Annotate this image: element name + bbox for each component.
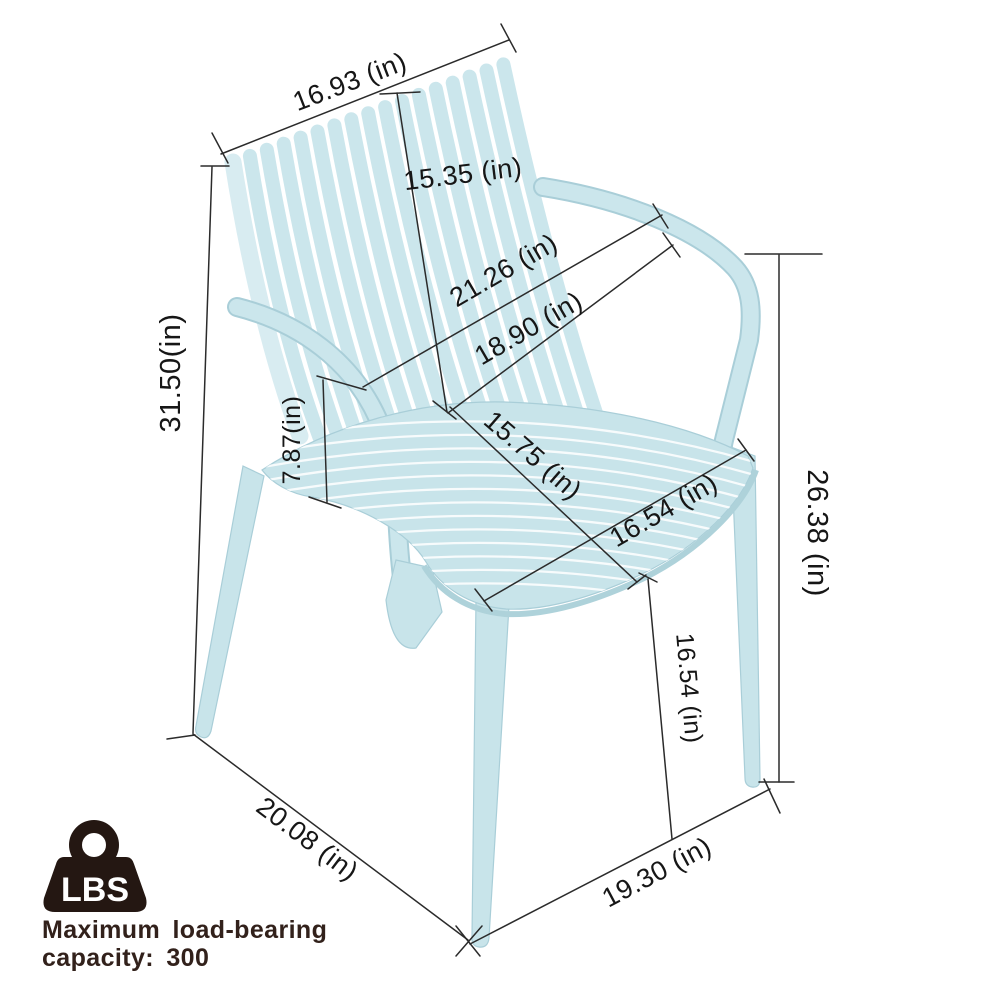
dim-label-arm-to-seat: 7.87(in) [278,396,306,485]
dim-label-overall-height: 31.50(in) [155,314,187,433]
dim-label-back-width: 16.93 (in) [289,46,411,117]
product-dimension-diagram: 16.93 (in) 15.35 (in) 21.26 (in) 18.90 (… [0,0,1000,1000]
load-capacity-badge: LBS Maximum load-bearing capacity: 300 [42,820,327,972]
dim-label-seat-height: 16.54 (in) [670,632,708,745]
dim-line-seat-height [648,579,672,839]
dim-label-arm-height: 26.38 (in) [801,469,833,597]
dim-label-base-depth: 20.08 (in) [251,791,364,887]
load-capacity-text-line2: capacity: 300 [42,944,209,972]
weight-icon: LBS [43,820,146,912]
chair-front-leg [472,599,509,947]
chair-left-leg [196,466,264,738]
dim-label-base-width: 19.30 (in) [597,831,716,913]
dim-line-base-width [470,789,770,944]
weight-icon-label: LBS [61,871,129,909]
chair-dimension-figure: 16.93 (in) 15.35 (in) 21.26 (in) 18.90 (… [0,0,1000,1000]
load-capacity-text-line1: Maximum load-bearing [42,916,327,944]
dim-line-overall-height [193,167,212,733]
